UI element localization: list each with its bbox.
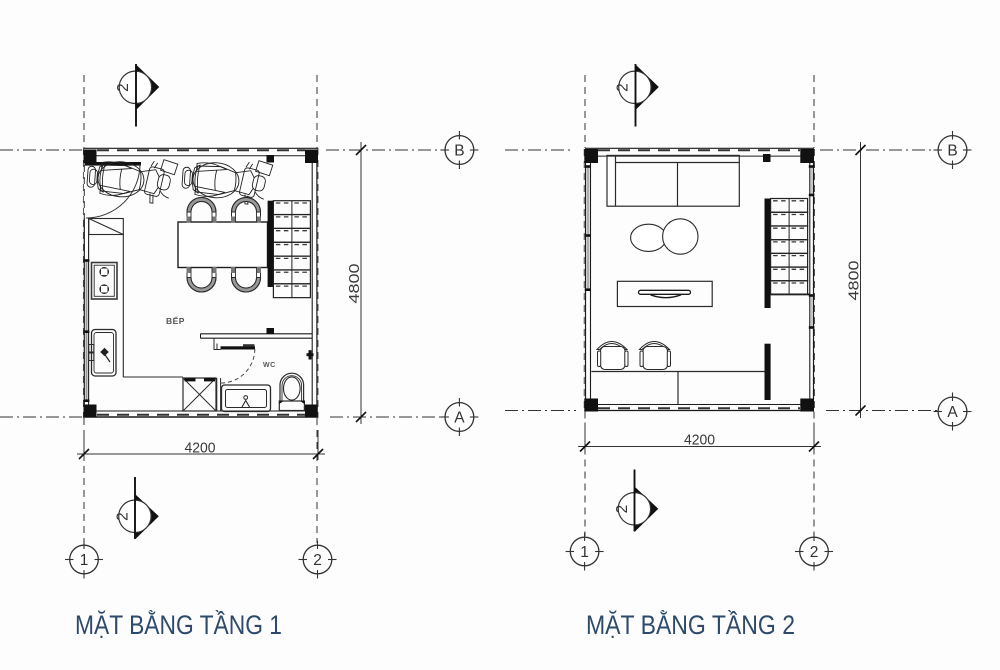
svg-text:4200: 4200 (185, 440, 216, 457)
svg-text:MẶT BẰNG TẦNG 1: MẶT BẰNG TẦNG 1 (75, 609, 282, 640)
svg-text:2: 2 (614, 505, 631, 514)
svg-text:4200: 4200 (684, 432, 715, 449)
svg-text:BẾP: BẾP (166, 316, 185, 326)
svg-text:1: 1 (580, 544, 589, 561)
svg-text:2: 2 (115, 83, 132, 92)
svg-text:1: 1 (80, 552, 89, 569)
svg-text:A: A (454, 410, 465, 427)
svg-text:MẶT BẰNG TẦNG 2: MẶT BẰNG TẦNG 2 (586, 609, 795, 640)
svg-text:B: B (454, 143, 464, 160)
svg-text:B: B (947, 143, 957, 160)
svg-text:2: 2 (115, 512, 132, 521)
svg-text:2: 2 (615, 83, 632, 92)
svg-text:2: 2 (810, 544, 819, 561)
svg-text:A: A (947, 404, 958, 421)
svg-text:WC: WC (263, 362, 276, 369)
svg-text:4800: 4800 (846, 261, 863, 301)
svg-text:2: 2 (313, 552, 322, 569)
svg-text:4800: 4800 (346, 264, 363, 304)
